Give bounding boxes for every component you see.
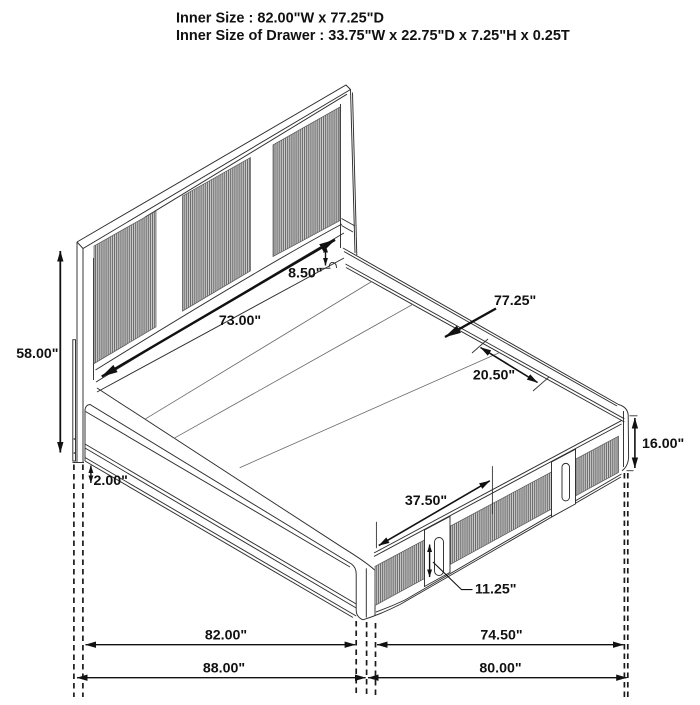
svg-text:74.50": 74.50" [480,628,522,644]
svg-text:73.00": 73.00" [219,313,261,329]
svg-text:8.50": 8.50" [288,266,322,282]
svg-text:37.50": 37.50" [405,493,447,509]
svg-text:80.00": 80.00" [479,661,521,677]
svg-text:16.00": 16.00" [642,436,684,452]
svg-text:88.00": 88.00" [203,661,245,677]
svg-text:Inner Size of Drawer : 33.75"W: Inner Size of Drawer : 33.75"W x 22.75"D… [176,28,570,44]
svg-text:Inner Size : 82.00"W x 77.25"D: Inner Size : 82.00"W x 77.25"D [176,11,384,27]
svg-text:2.00": 2.00" [94,473,128,489]
svg-text:20.50": 20.50" [473,368,515,384]
svg-text:77.25": 77.25" [494,293,536,309]
svg-text:82.00": 82.00" [205,628,247,644]
svg-text:58.00": 58.00" [16,346,58,362]
svg-text:11.25": 11.25" [475,582,516,598]
